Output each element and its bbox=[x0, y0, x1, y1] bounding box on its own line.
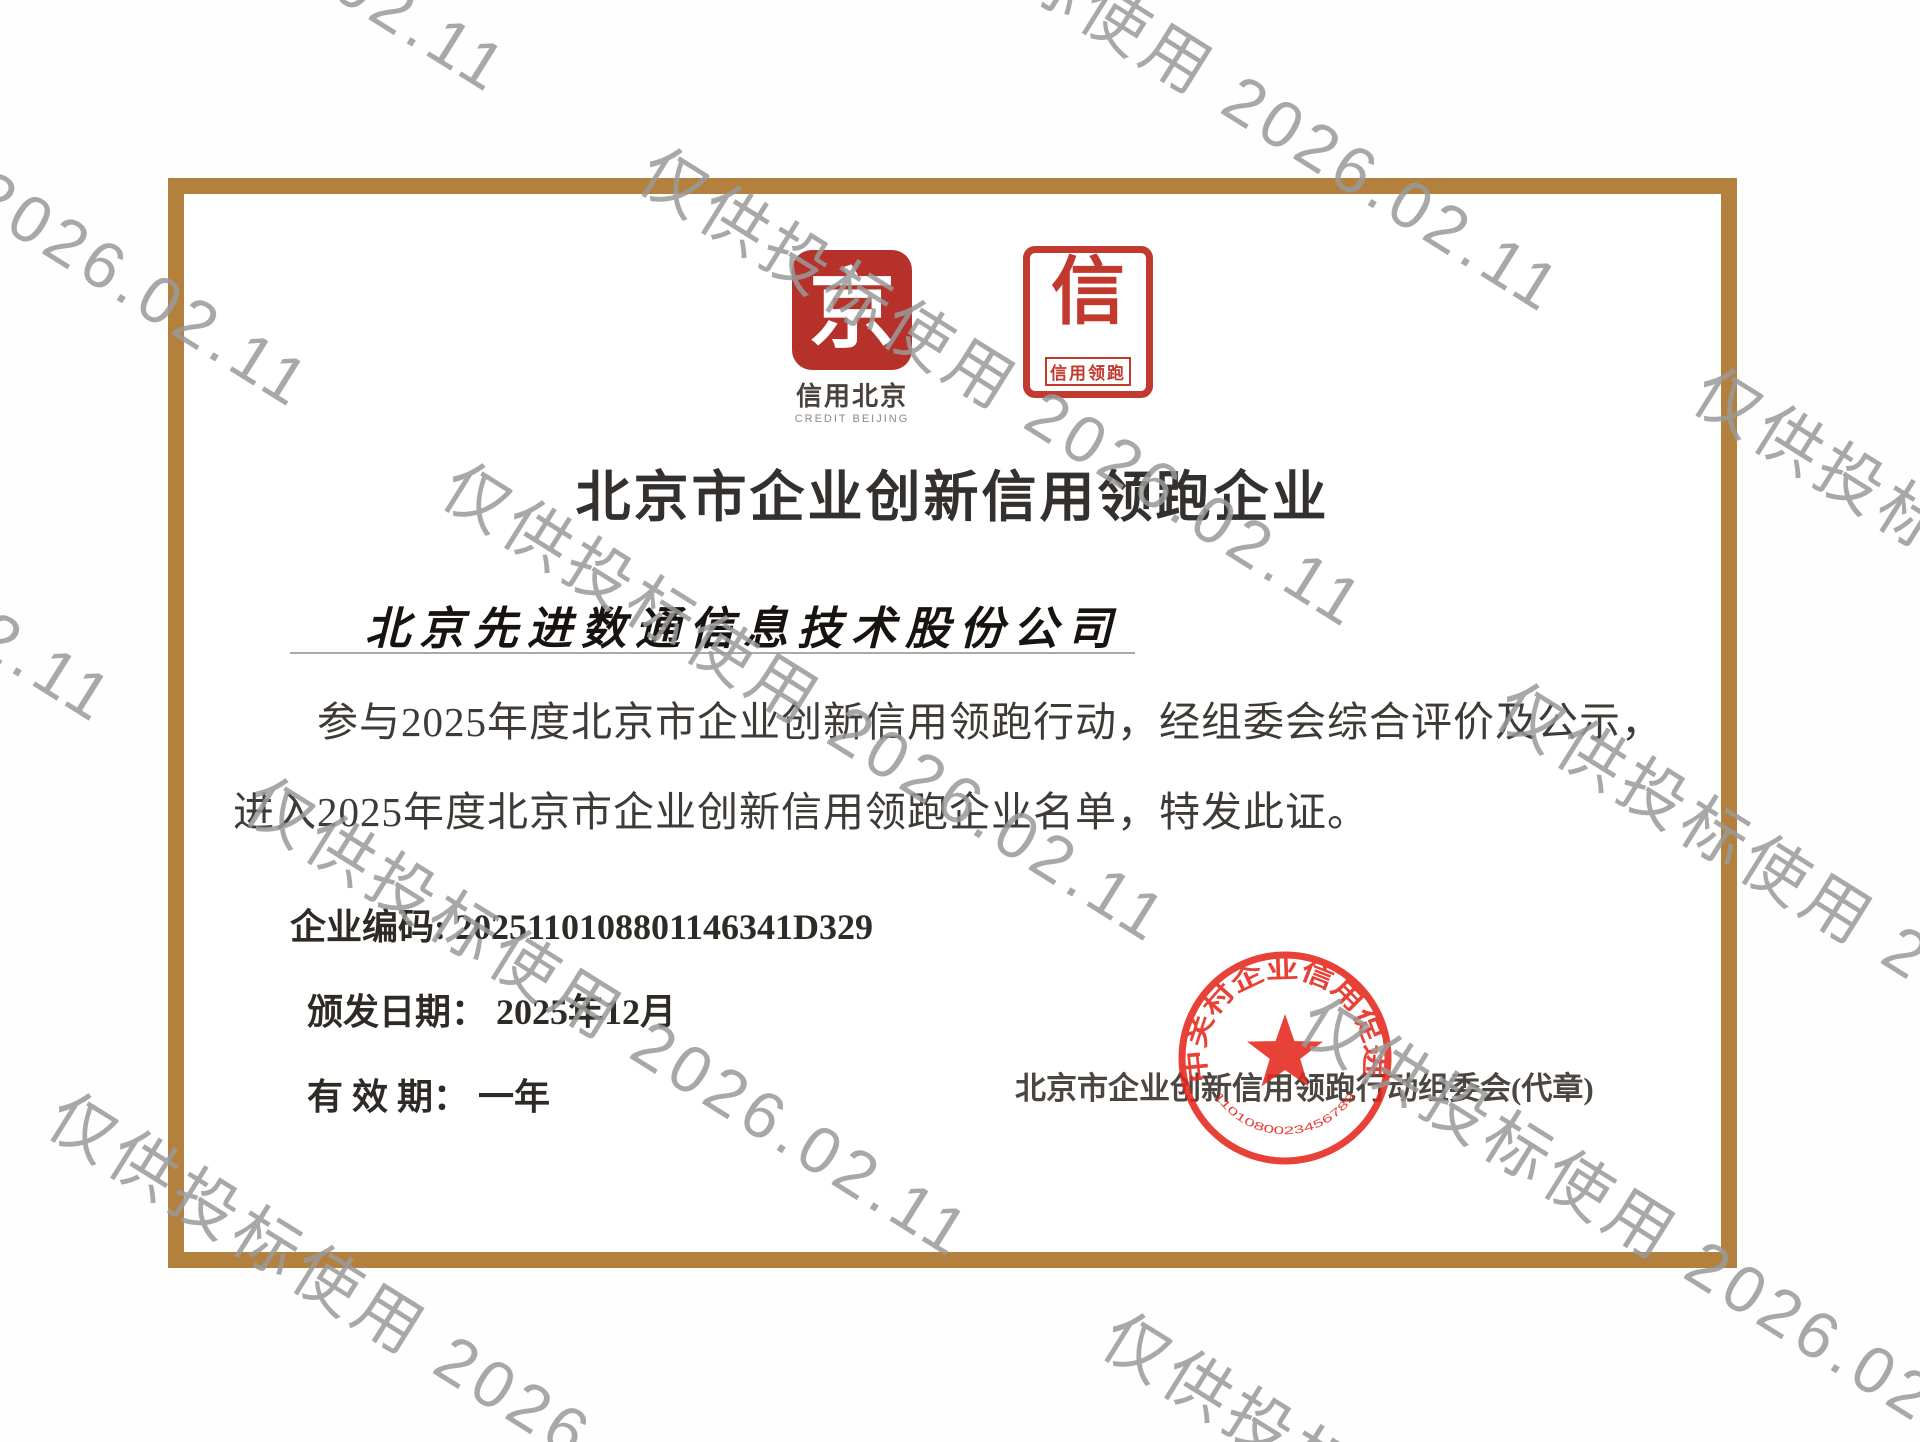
official-seal: 中关村企业信用促进会 1101080023456789 bbox=[1165, 938, 1405, 1178]
watermark-text: 仅供投标使用 2026.02.11 bbox=[0, 0, 531, 112]
issue-date-label: 颁发日期： bbox=[307, 992, 487, 1032]
body-line-2: 进入2025年度北京市企业创新信用领跑企业名单，特发此证。 bbox=[233, 778, 1369, 838]
certificate-title: 北京市企业创新信用领跑企业 bbox=[168, 452, 1737, 532]
validity-field: 有 效 期： 一年 bbox=[307, 1068, 550, 1120]
issue-date-field: 颁发日期： 2025年12月 bbox=[307, 983, 676, 1035]
seal-code: 1101080023456789 bbox=[1211, 1090, 1358, 1137]
svg-text:1101080023456789: 1101080023456789 bbox=[1211, 1090, 1358, 1137]
credit-leader-logo: 信 信用领跑 bbox=[1023, 246, 1153, 398]
enterprise-code-label: 企业编码: bbox=[290, 907, 446, 947]
validity-value: 一年 bbox=[478, 1077, 550, 1117]
credit-leader-glyph: 信 bbox=[1051, 253, 1125, 334]
issue-date-value: 2025年12月 bbox=[496, 992, 676, 1032]
watermark-text: 仅供投标使用 2026.02.11 bbox=[1086, 1285, 1851, 1442]
credit-beijing-logo-icon: 京 bbox=[792, 250, 912, 370]
credit-leader-caption: 信用领跑 bbox=[1045, 357, 1131, 386]
credit-beijing-logo: 京 信用北京 CREDIT BEIJING bbox=[775, 250, 929, 425]
certificate-page: 京 信用北京 CREDIT BEIJING 信 信用领跑 北京市企业创新信用领跑… bbox=[0, 0, 1920, 1442]
watermark-text: 仅供投标使用 2026.02.11 bbox=[0, 215, 137, 742]
enterprise-code-field: 企业编码: 2025110108801146341D329 bbox=[290, 898, 873, 950]
body-line-1: 参与2025年度北京市企业创新信用领跑行动，经组委会综合评价及公示， bbox=[233, 688, 1663, 748]
seal-star-icon bbox=[1247, 1014, 1323, 1086]
credit-beijing-caption-en: CREDIT BEIJING bbox=[775, 413, 929, 425]
credit-beijing-caption-cn: 信用北京 bbox=[775, 376, 929, 413]
enterprise-code-value: 2025110108801146341D329 bbox=[455, 907, 873, 947]
credit-beijing-glyph: 京 bbox=[809, 267, 895, 353]
company-name-underline bbox=[290, 652, 1135, 654]
validity-label: 有 效 期： bbox=[307, 1077, 469, 1117]
watermark-text: 仅供投标使用 2026.02.11 bbox=[0, 1380, 600, 1442]
company-name: 北京先进数通信息技术股份公司 bbox=[365, 592, 1121, 657]
